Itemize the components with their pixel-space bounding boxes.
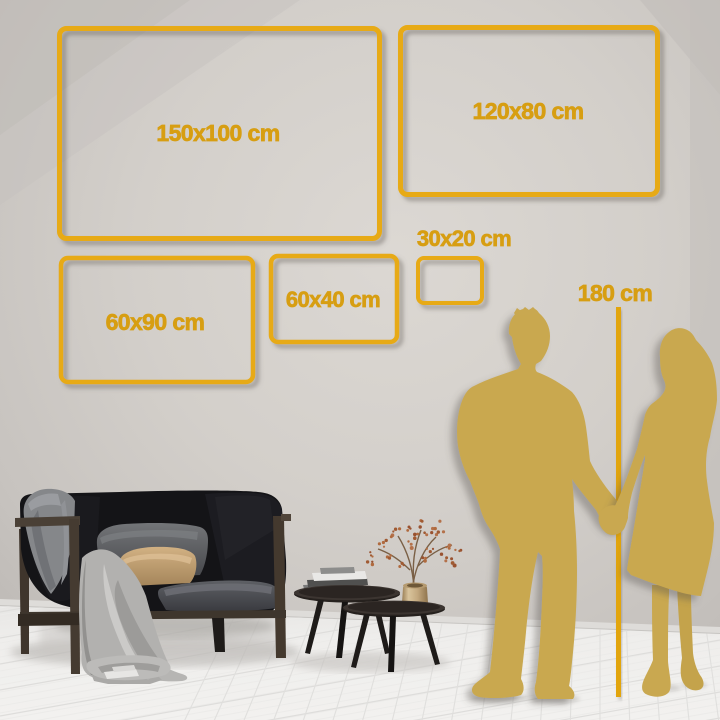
svg-text:30x20 cm: 30x20 cm [417, 226, 511, 251]
svg-text:150x100 cm: 150x100 cm [156, 120, 279, 146]
svg-text:120x80 cm: 120x80 cm [473, 98, 584, 124]
svg-text:180 cm: 180 cm [578, 280, 653, 306]
svg-text:60x40 cm: 60x40 cm [286, 287, 380, 312]
svg-text:60x90 cm: 60x90 cm [106, 309, 205, 335]
